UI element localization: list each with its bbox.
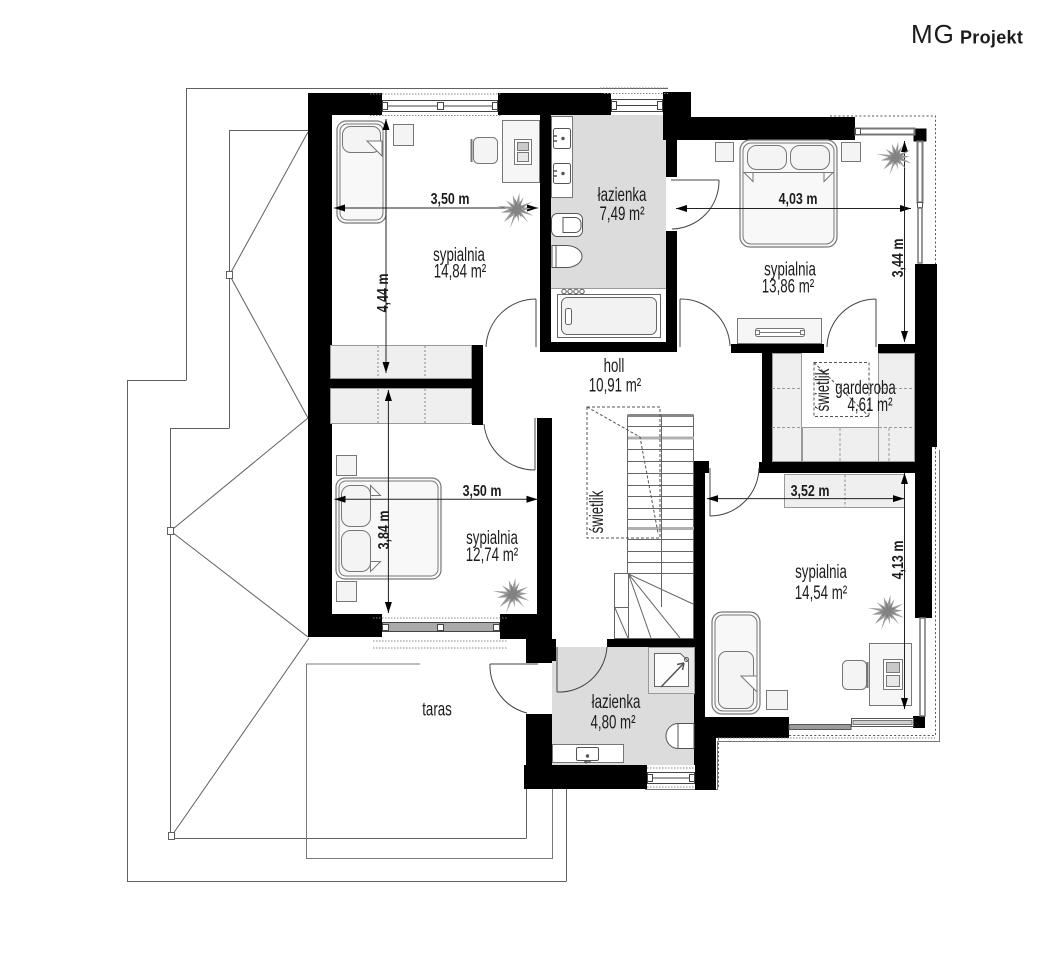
- svg-text:sypialnia: sypialnia: [795, 562, 847, 583]
- svg-text:7,49 m²: 7,49 m²: [599, 204, 644, 225]
- svg-text:MG: MG: [911, 19, 955, 49]
- svg-text:4,44 m: 4,44 m: [375, 274, 393, 313]
- svg-text:3,44 m: 3,44 m: [890, 239, 908, 278]
- svg-text:łazienka: łazienka: [592, 692, 641, 713]
- svg-text:holl: holl: [604, 356, 625, 377]
- svg-text:12,74 m²: 12,74 m²: [466, 545, 519, 566]
- svg-text:13,86 m²: 13,86 m²: [762, 276, 815, 297]
- svg-text:3,50 m: 3,50 m: [463, 483, 502, 501]
- svg-text:3,52 m: 3,52 m: [791, 483, 830, 501]
- svg-text:świetlik: świetlik: [813, 368, 834, 411]
- svg-text:4,13 m: 4,13 m: [890, 541, 908, 580]
- svg-text:4,03 m: 4,03 m: [779, 191, 818, 209]
- svg-text:10,91 m²: 10,91 m²: [589, 375, 642, 396]
- svg-text:14,54 m²: 14,54 m²: [795, 583, 848, 604]
- svg-text:3,50 m: 3,50 m: [431, 191, 470, 209]
- svg-text:łazienka: łazienka: [598, 185, 647, 206]
- svg-text:14,84 m²: 14,84 m²: [434, 261, 487, 282]
- svg-text:świetlik: świetlik: [587, 490, 608, 533]
- svg-text:4,80 m²: 4,80 m²: [590, 712, 635, 733]
- svg-text:Projekt: Projekt: [960, 28, 1023, 48]
- svg-text:3,84 m: 3,84 m: [376, 511, 394, 550]
- svg-text:taras: taras: [422, 699, 452, 720]
- svg-text:4,61 m²: 4,61 m²: [847, 395, 892, 416]
